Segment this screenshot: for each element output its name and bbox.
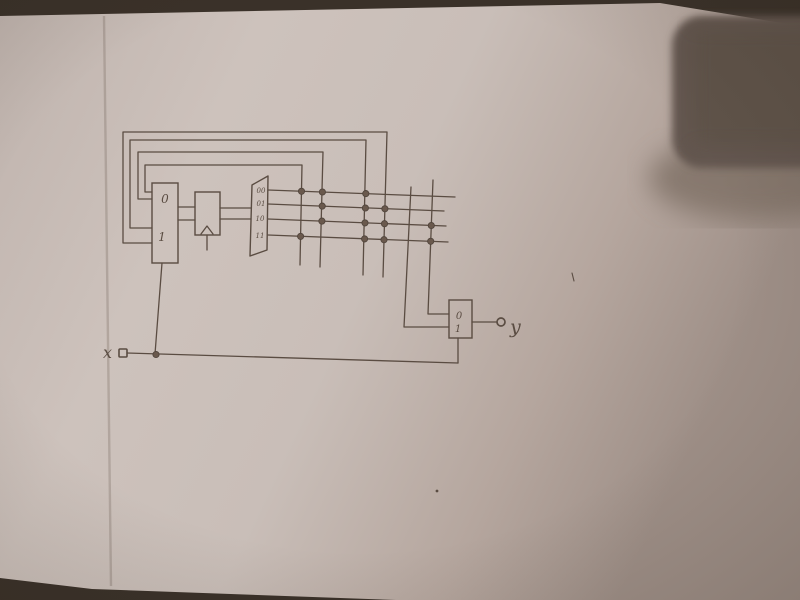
circuit-diagram-scene: 010100011011 xy [0,0,800,600]
photo-vignette [0,0,800,600]
photo-of-hand-drawn-circuit: 010100011011 xy [0,0,800,600]
